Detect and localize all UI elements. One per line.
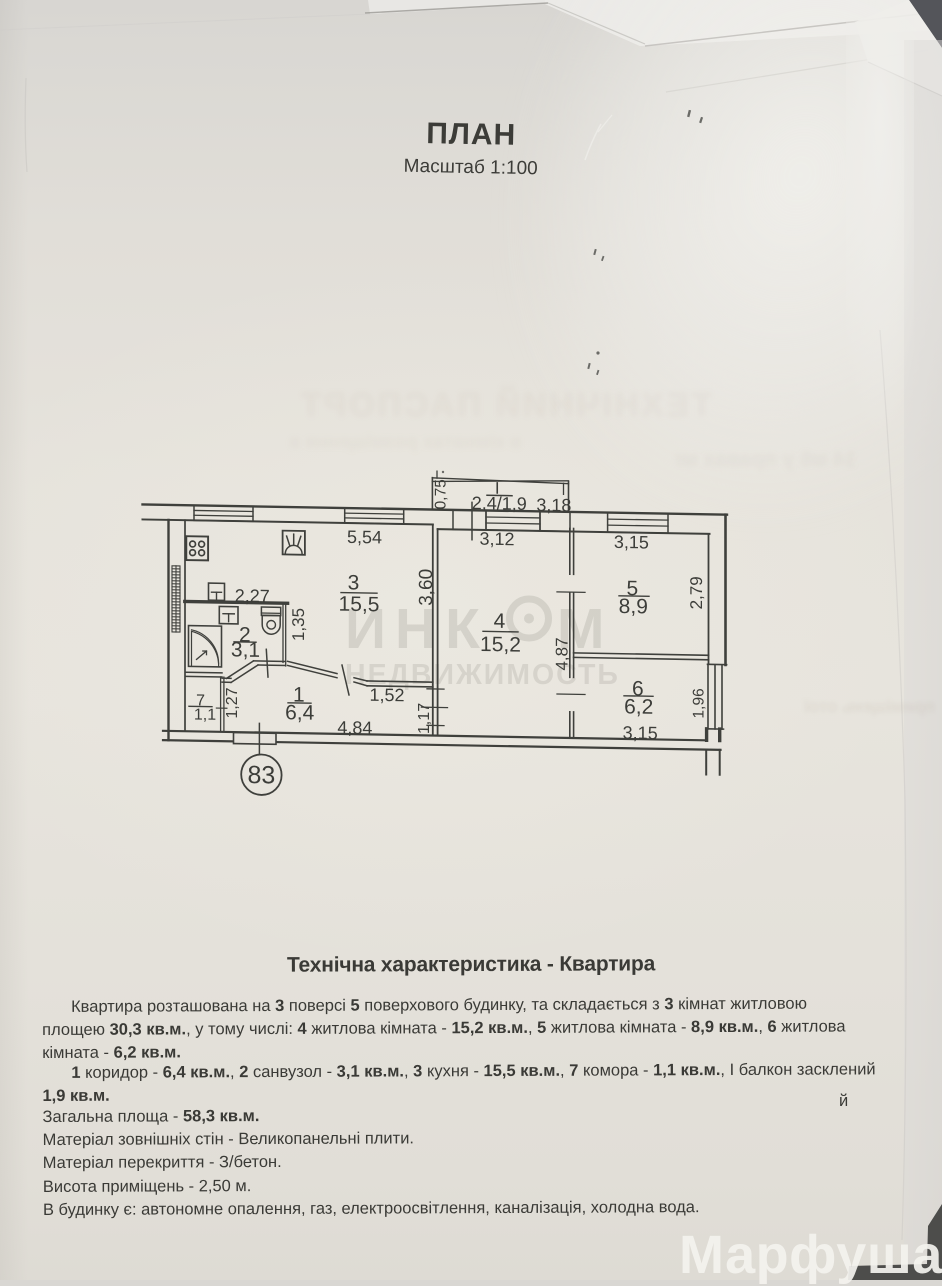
- svg-text:6,2: 6,2: [624, 695, 653, 719]
- svg-text:3,15: 3,15: [623, 723, 658, 744]
- svg-text:4,84: 4,84: [337, 717, 372, 738]
- svg-text:0,75: 0,75: [432, 479, 449, 509]
- svg-text:4,87: 4,87: [553, 637, 572, 670]
- svg-text:2,4/1,9: 2,4/1,9: [472, 493, 527, 514]
- svg-text:83: 83: [247, 761, 275, 789]
- svg-text:15,2: 15,2: [480, 633, 521, 657]
- svg-text:1,27: 1,27: [224, 687, 241, 719]
- svg-text:3,60: 3,60: [416, 569, 437, 606]
- svg-text:3,12: 3,12: [479, 529, 514, 550]
- svg-text:1,52: 1,52: [369, 685, 404, 706]
- svg-text:приміщень отої: приміщень отої: [803, 697, 935, 716]
- svg-text:15,5: 15,5: [339, 593, 380, 617]
- svg-text:3,18: 3,18: [536, 495, 571, 516]
- svg-text:8,9: 8,9: [619, 595, 648, 619]
- svg-text:2,79: 2,79: [687, 576, 706, 609]
- svg-text:3: 3: [348, 571, 360, 594]
- svg-text:2,27: 2,27: [235, 586, 270, 607]
- svg-text:5,54: 5,54: [347, 527, 382, 548]
- svg-text:4: 4: [494, 610, 506, 633]
- svg-text:6,4: 6,4: [285, 701, 315, 725]
- svg-text:1,35: 1,35: [289, 608, 308, 641]
- svg-text:3,15: 3,15: [614, 532, 649, 553]
- svg-text:1,1: 1,1: [194, 706, 216, 723]
- svg-text:1,17: 1,17: [416, 703, 433, 735]
